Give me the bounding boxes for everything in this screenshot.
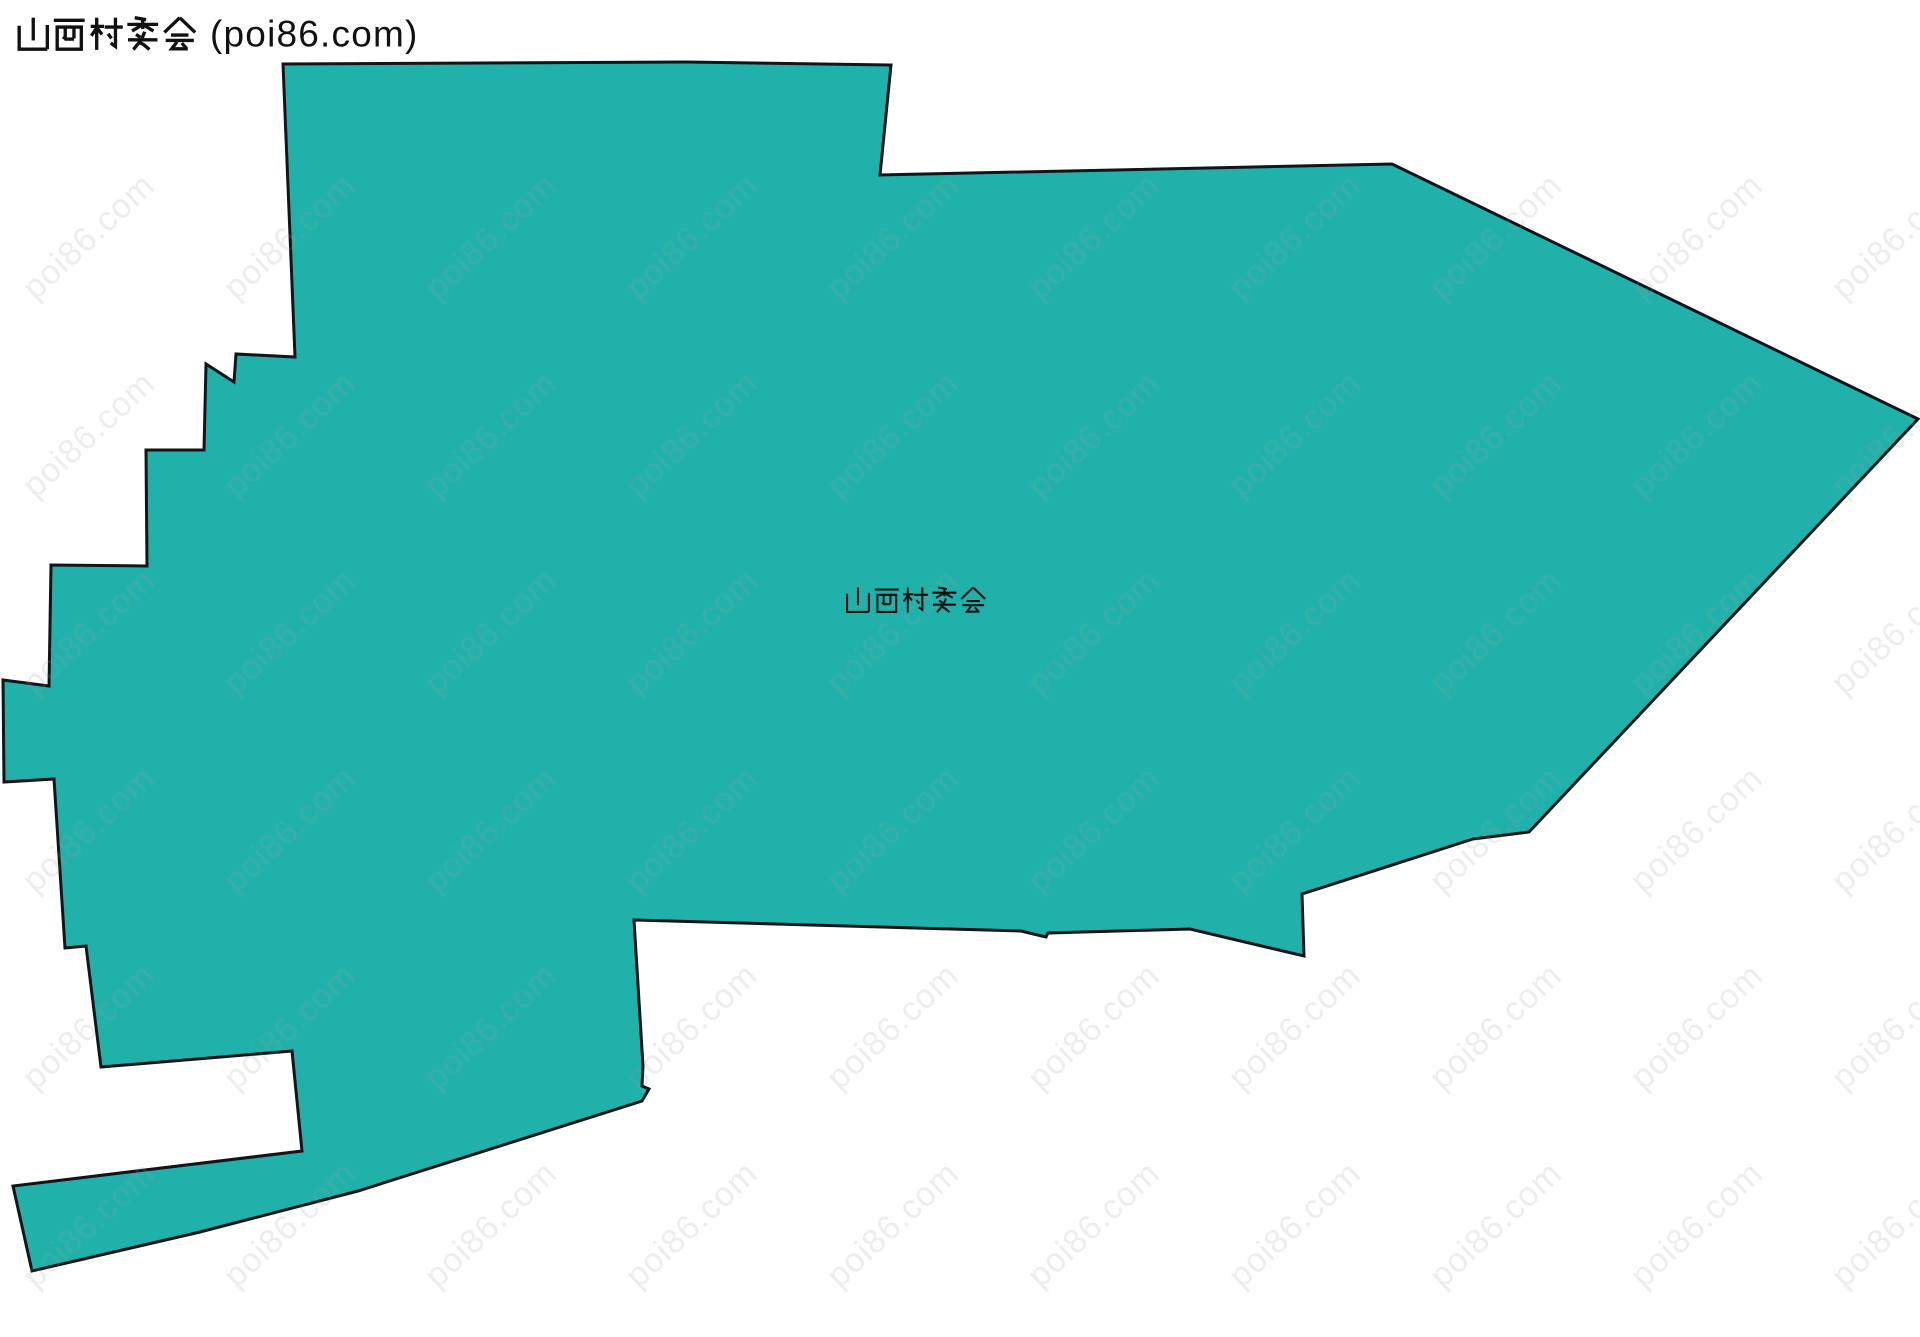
svg-text:poi86.com: poi86.com	[1623, 759, 1770, 900]
svg-text:poi86.com: poi86.com	[1422, 956, 1569, 1097]
svg-text:poi86.com: poi86.com	[1422, 1154, 1569, 1295]
svg-text:poi86.com: poi86.com	[819, 1154, 966, 1295]
svg-text:poi86.com: poi86.com	[1221, 1154, 1368, 1295]
svg-text:poi86.com: poi86.com	[417, 1154, 564, 1295]
svg-text:poi86.com: poi86.com	[15, 364, 162, 505]
svg-text:poi86.com: poi86.com	[1623, 1154, 1770, 1295]
svg-text:poi86.com: poi86.com	[1020, 1154, 1167, 1295]
svg-text:poi86.com: poi86.com	[1623, 166, 1770, 307]
svg-text:poi86.com: poi86.com	[1824, 166, 1920, 307]
svg-text:(poi86.com): (poi86.com)	[210, 14, 419, 55]
svg-text:poi86.com: poi86.com	[1623, 956, 1770, 1097]
svg-text:poi86.com: poi86.com	[618, 1154, 765, 1295]
svg-text:poi86.com: poi86.com	[1020, 956, 1167, 1097]
svg-text:poi86.com: poi86.com	[1824, 759, 1920, 900]
svg-text:poi86.com: poi86.com	[819, 956, 966, 1097]
svg-text:poi86.com: poi86.com	[1824, 956, 1920, 1097]
svg-text:poi86.com: poi86.com	[1824, 561, 1920, 702]
svg-text:poi86.com: poi86.com	[1221, 956, 1368, 1097]
svg-text:poi86.com: poi86.com	[1824, 1154, 1920, 1295]
svg-text:poi86.com: poi86.com	[15, 166, 162, 307]
